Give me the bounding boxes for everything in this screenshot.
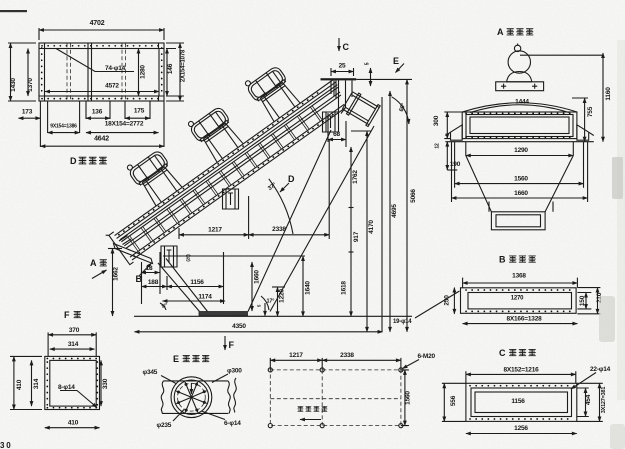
svg-text:1762: 1762 xyxy=(352,170,359,184)
svg-text:A: A xyxy=(90,258,97,268)
svg-text:74-φ14: 74-φ14 xyxy=(105,65,126,72)
svg-text:1368: 1368 xyxy=(512,273,526,280)
svg-text:9X154=1386: 9X154=1386 xyxy=(50,124,77,130)
svg-text:19-φ14: 19-φ14 xyxy=(393,319,412,325)
svg-text:4642: 4642 xyxy=(94,136,109,143)
svg-text:188: 188 xyxy=(148,279,159,286)
svg-text:22-φ14: 22-φ14 xyxy=(590,366,611,373)
svg-text:F: F xyxy=(229,340,235,350)
svg-text:370: 370 xyxy=(69,327,80,334)
svg-text:D: D xyxy=(288,174,295,184)
svg-text:E: E xyxy=(393,56,399,66)
svg-text:314: 314 xyxy=(33,378,40,389)
svg-text:1174: 1174 xyxy=(198,294,212,301)
svg-text:330: 330 xyxy=(102,378,109,389)
svg-text:F: F xyxy=(64,310,70,320)
svg-text:18X154=2772: 18X154=2772 xyxy=(105,121,144,128)
svg-text:2X154=1078: 2X154=1078 xyxy=(181,49,187,82)
svg-text:2338: 2338 xyxy=(340,352,354,359)
svg-text:755: 755 xyxy=(587,106,594,117)
svg-text:φ300: φ300 xyxy=(227,368,242,375)
svg-text:18: 18 xyxy=(146,265,153,272)
svg-text:C: C xyxy=(499,348,506,358)
svg-text:A: A xyxy=(497,27,504,37)
svg-text:4350: 4350 xyxy=(232,323,246,330)
svg-text:8X166=1328: 8X166=1328 xyxy=(506,316,542,323)
svg-text:1660: 1660 xyxy=(514,190,528,197)
svg-text:454: 454 xyxy=(585,394,592,405)
svg-text:1270: 1270 xyxy=(511,296,524,302)
svg-text:1560: 1560 xyxy=(405,391,412,405)
svg-text:1444: 1444 xyxy=(515,99,529,106)
svg-text:1256: 1256 xyxy=(514,425,528,432)
svg-text:4702: 4702 xyxy=(90,20,105,27)
svg-text:175: 175 xyxy=(134,108,145,115)
svg-text:1660: 1660 xyxy=(254,270,261,284)
svg-text:4170: 4170 xyxy=(368,220,375,234)
svg-text:C: C xyxy=(343,42,350,52)
svg-text:25: 25 xyxy=(339,63,346,70)
svg-text:3 0: 3 0 xyxy=(0,441,11,449)
svg-text:556: 556 xyxy=(450,395,457,406)
svg-text:1560: 1560 xyxy=(514,176,528,183)
svg-text:1280: 1280 xyxy=(140,65,147,79)
svg-text:5066: 5066 xyxy=(410,189,417,203)
svg-text:1640: 1640 xyxy=(305,281,312,295)
svg-text:3X127=381: 3X127=381 xyxy=(601,387,607,414)
svg-text:1430: 1430 xyxy=(10,78,17,92)
svg-text:146: 146 xyxy=(167,63,174,74)
svg-text:(25): (25) xyxy=(186,254,191,262)
svg-text:410: 410 xyxy=(16,379,23,390)
svg-text:410: 410 xyxy=(68,420,79,427)
svg-text:190: 190 xyxy=(450,161,461,168)
svg-text:B: B xyxy=(499,255,506,265)
svg-text:5: 5 xyxy=(365,62,371,65)
svg-text:17°: 17° xyxy=(267,299,275,305)
svg-text:D: D xyxy=(70,156,77,166)
svg-text:φ345: φ345 xyxy=(143,369,158,376)
svg-text:173: 173 xyxy=(22,109,33,116)
svg-text:314: 314 xyxy=(68,341,79,348)
svg-text:12: 12 xyxy=(435,143,441,149)
svg-text:68: 68 xyxy=(333,131,340,138)
svg-text:1217: 1217 xyxy=(208,227,222,234)
svg-text:1217: 1217 xyxy=(289,352,303,359)
svg-text:2338: 2338 xyxy=(272,226,286,233)
svg-text:1220: 1220 xyxy=(279,289,286,303)
svg-text:1662: 1662 xyxy=(113,267,120,281)
svg-text:1618: 1618 xyxy=(341,281,348,295)
svg-text:6-M20: 6-M20 xyxy=(418,353,436,360)
svg-text:1370: 1370 xyxy=(27,78,34,92)
svg-text:4695: 4695 xyxy=(391,204,398,218)
svg-text:4572: 4572 xyxy=(105,83,119,90)
svg-text:E: E xyxy=(173,354,179,364)
svg-text:8X152=1216: 8X152=1216 xyxy=(503,367,539,374)
svg-text:1290: 1290 xyxy=(514,147,528,154)
svg-text:6-φ14: 6-φ14 xyxy=(224,420,241,427)
svg-text:1156: 1156 xyxy=(190,279,204,286)
svg-text:1160: 1160 xyxy=(605,87,612,101)
svg-text:300: 300 xyxy=(433,115,440,126)
svg-text:150: 150 xyxy=(579,295,586,306)
svg-text:φ235: φ235 xyxy=(157,422,172,429)
svg-text:917: 917 xyxy=(353,231,360,242)
svg-text:1156: 1156 xyxy=(511,398,525,405)
svg-text:136: 136 xyxy=(92,109,103,116)
